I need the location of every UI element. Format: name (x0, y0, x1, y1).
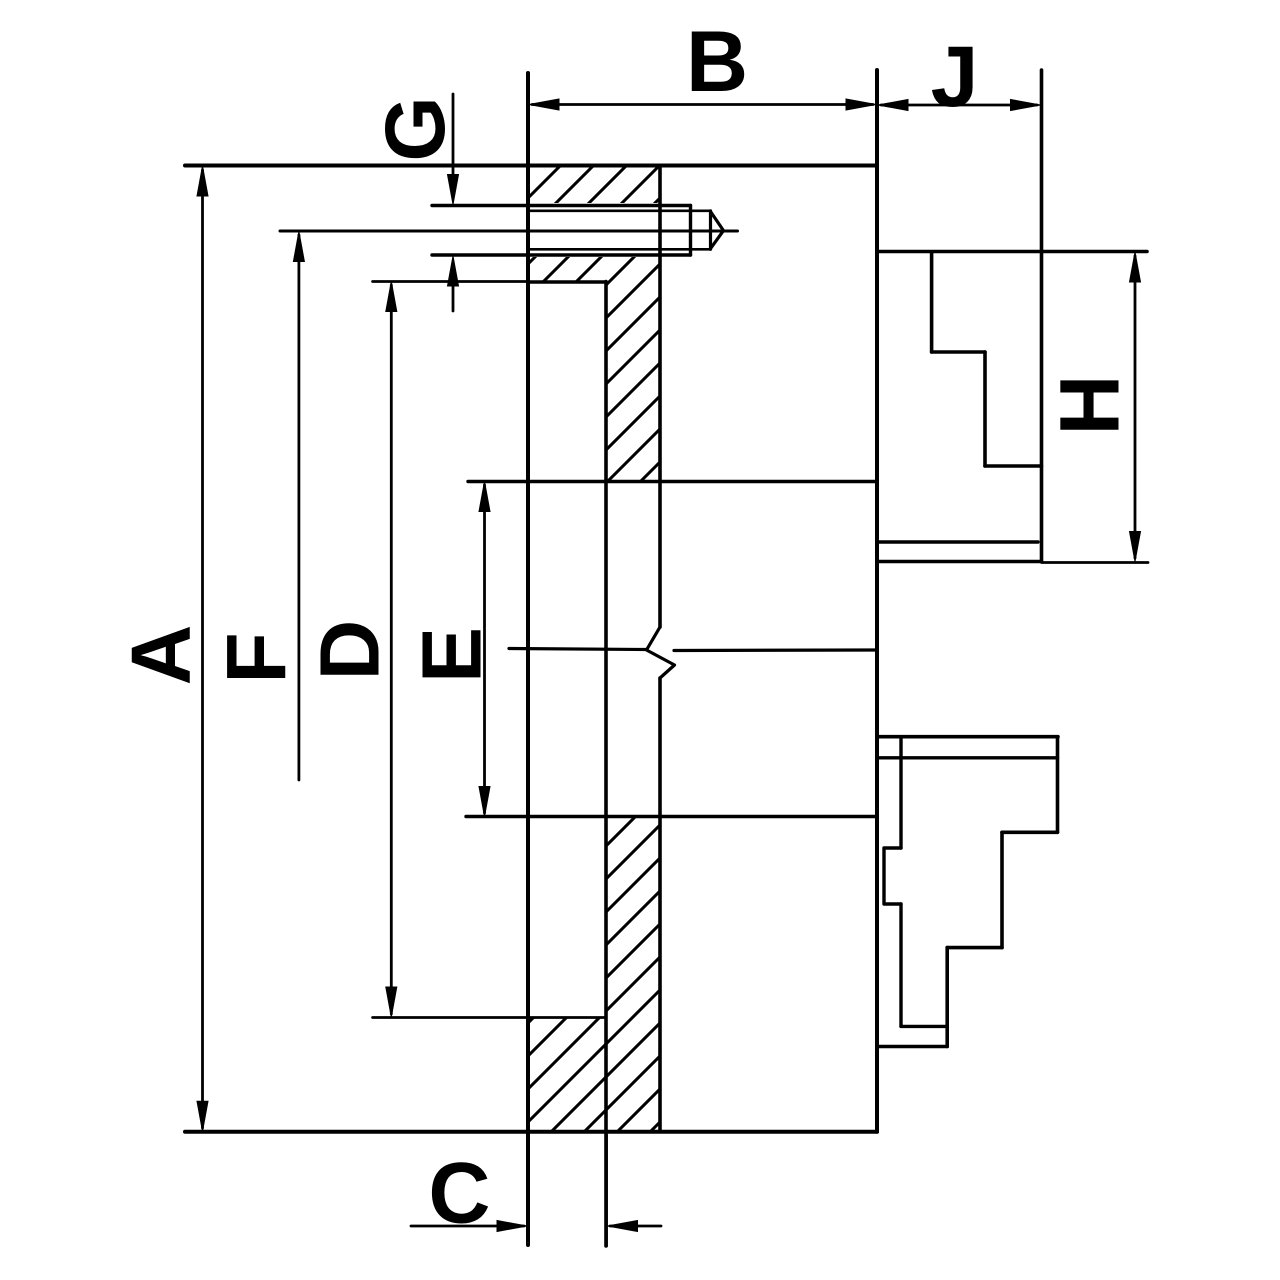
svg-text:D: D (303, 620, 397, 681)
svg-text:J: J (931, 29, 979, 125)
svg-text:C: C (428, 1146, 490, 1242)
svg-text:G: G (368, 96, 462, 161)
svg-text:A: A (114, 625, 208, 686)
svg-text:H: H (1043, 375, 1137, 436)
svg-text:B: B (686, 14, 748, 110)
svg-text:E: E (405, 627, 499, 683)
svg-text:F: F (210, 632, 304, 683)
